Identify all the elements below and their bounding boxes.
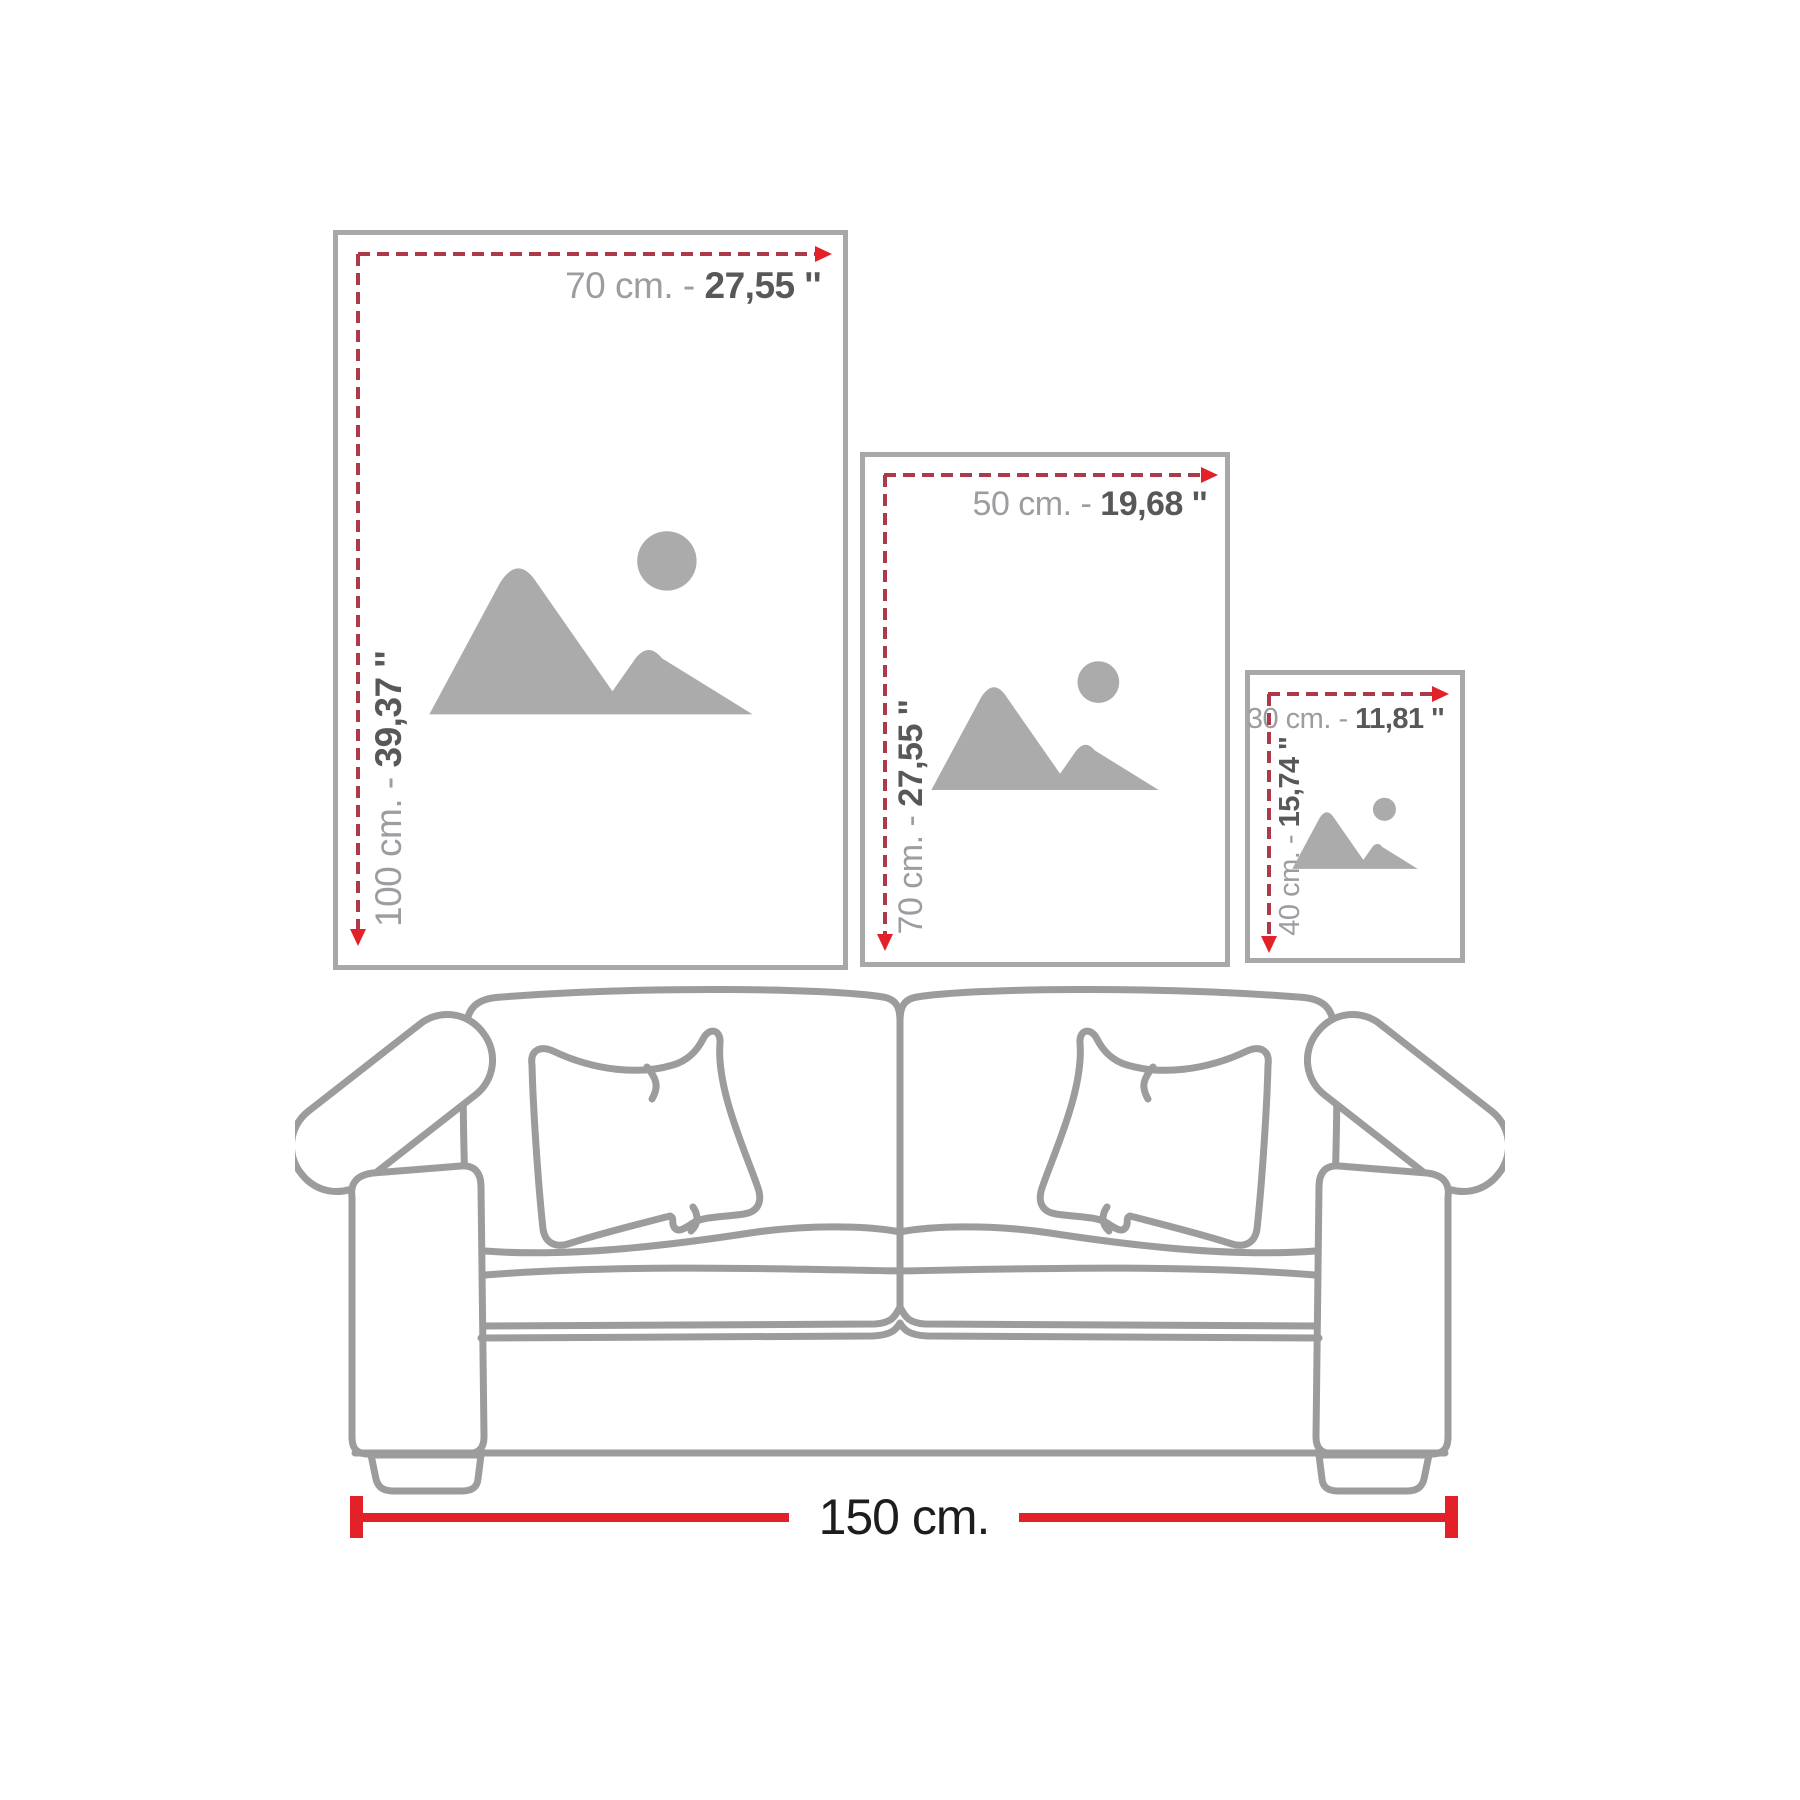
frame-large: 70 cm. - 27,55 '' 100 cm. - 39,37 '' xyxy=(333,230,848,970)
height-inch-text: 39,37 '' xyxy=(368,651,409,767)
width-cm-text: 70 cm. - xyxy=(565,265,695,306)
width-dimension-label: 50 cm. - 19,68 '' xyxy=(973,485,1207,524)
height-measure-dashed-line xyxy=(1267,694,1271,938)
image-placeholder-icon xyxy=(929,657,1161,792)
width-inch-text: 11,81 '' xyxy=(1355,703,1444,735)
image-placeholder-icon xyxy=(426,526,756,717)
width-measure-dashed-line xyxy=(358,252,817,256)
height-cm-text: 100 cm. - xyxy=(368,777,409,927)
arrow-down-icon xyxy=(877,934,893,951)
width-dimension-label: 70 cm. - 27,55 '' xyxy=(565,265,821,307)
sofa-illustration xyxy=(295,985,1505,1505)
width-cm-text: 30 cm. - xyxy=(1247,703,1348,735)
arrow-right-icon xyxy=(815,246,832,262)
size-guide-diagram: 70 cm. - 27,55 '' 100 cm. - 39,37 '' 50 … xyxy=(0,0,1800,1800)
height-inch-text: 27,55 '' xyxy=(892,700,930,807)
width-measure-dashed-line xyxy=(1268,692,1434,696)
height-cm-text: 70 cm. - xyxy=(892,815,930,934)
width-inch-text: 19,68 '' xyxy=(1100,485,1207,523)
height-measure-dashed-line xyxy=(356,254,360,931)
height-dimension-label: 70 cm. - 27,55 '' xyxy=(892,700,931,934)
frame-medium: 50 cm. - 19,68 '' 70 cm. - 27,55 '' xyxy=(860,452,1230,967)
width-dimension-label: 30 cm. - 11,81 '' xyxy=(1247,703,1444,736)
sofa-width-label: 150 cm. xyxy=(789,1488,1020,1546)
arrow-right-icon xyxy=(1201,467,1218,483)
measure-end-cap-right xyxy=(1445,1496,1458,1538)
image-placeholder-icon xyxy=(1291,796,1419,870)
sofa-width-measure: 150 cm. xyxy=(350,1496,1458,1538)
sofa-feet xyxy=(371,1455,1429,1491)
frame-small: 30 cm. - 11,81 '' 40 cm. - 15,74 '' xyxy=(1245,670,1465,963)
arrow-right-icon xyxy=(1432,686,1449,702)
width-inch-text: 27,55 '' xyxy=(705,265,821,306)
sofa-seat-cushions xyxy=(481,1227,1319,1338)
height-measure-dashed-line xyxy=(883,475,887,936)
height-dimension-label: 100 cm. - 39,37 '' xyxy=(368,651,410,927)
arrow-down-icon xyxy=(1261,936,1277,953)
width-cm-text: 50 cm. - xyxy=(973,485,1092,523)
arrow-down-icon xyxy=(350,929,366,946)
width-measure-dashed-line xyxy=(884,473,1203,477)
